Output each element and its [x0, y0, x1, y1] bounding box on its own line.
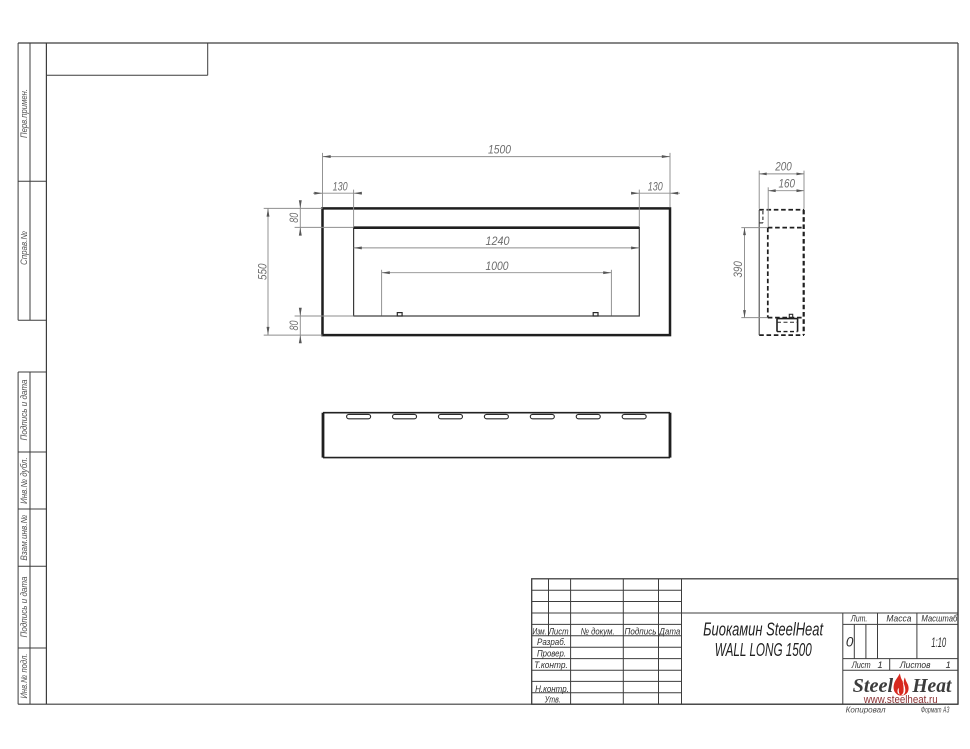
svg-text:Провер.: Провер.: [537, 648, 566, 658]
svg-text:Перв.примен.: Перв.примен.: [19, 89, 29, 138]
svg-text:Изм.: Изм.: [533, 627, 547, 637]
svg-text:1: 1: [878, 660, 883, 670]
svg-text:1240: 1240: [486, 234, 510, 248]
svg-text:Лист: Лист: [548, 627, 569, 637]
svg-text:200: 200: [774, 160, 791, 174]
svg-text:Лист: Лист: [851, 660, 871, 670]
svg-text:WALL LONG 1500: WALL LONG 1500: [715, 640, 812, 660]
svg-text:80: 80: [287, 213, 301, 223]
svg-text:0: 0: [846, 635, 854, 650]
svg-text:№ докум.: № докум.: [581, 627, 615, 637]
svg-text:Справ.№: Справ.№: [19, 231, 29, 265]
svg-text:Н.контр.: Н.контр.: [535, 684, 569, 694]
svg-text:Разраб.: Разраб.: [537, 637, 566, 647]
svg-text:Формат А3: Формат А3: [921, 704, 950, 714]
svg-text:Масса: Масса: [886, 614, 911, 624]
svg-text:Масштаб: Масштаб: [921, 614, 958, 624]
svg-text:Лит.: Лит.: [850, 614, 867, 624]
svg-text:Подпись: Подпись: [625, 627, 657, 637]
svg-text:160: 160: [779, 177, 796, 191]
svg-text:Копировал: Копировал: [846, 704, 886, 714]
svg-text:550: 550: [255, 263, 269, 280]
svg-text:Инв.№ подл.: Инв.№ подл.: [19, 654, 29, 699]
svg-text:Утв.: Утв.: [544, 694, 561, 704]
svg-text:390: 390: [731, 261, 745, 278]
svg-text:Биокамин SteelHeat: Биокамин SteelHeat: [703, 620, 824, 640]
svg-text:Подпись и дата: Подпись и дата: [19, 576, 29, 637]
svg-text:Листов: Листов: [899, 660, 931, 670]
svg-text:1500: 1500: [488, 143, 511, 157]
svg-text:130: 130: [333, 179, 348, 193]
svg-text:Дата: Дата: [658, 627, 680, 637]
svg-text:Подпись и дата: Подпись и дата: [19, 379, 29, 440]
svg-text:Инв.№ дубл.: Инв.№ дубл.: [19, 457, 29, 504]
svg-text:130: 130: [648, 179, 663, 193]
svg-text:Взам.инв.№: Взам.инв.№: [19, 515, 29, 561]
svg-text:80: 80: [287, 320, 301, 330]
svg-text:1: 1: [946, 660, 951, 670]
svg-text:1000: 1000: [486, 259, 509, 273]
svg-text:Т.контр.: Т.контр.: [534, 660, 568, 670]
svg-text:1:10: 1:10: [931, 635, 946, 650]
